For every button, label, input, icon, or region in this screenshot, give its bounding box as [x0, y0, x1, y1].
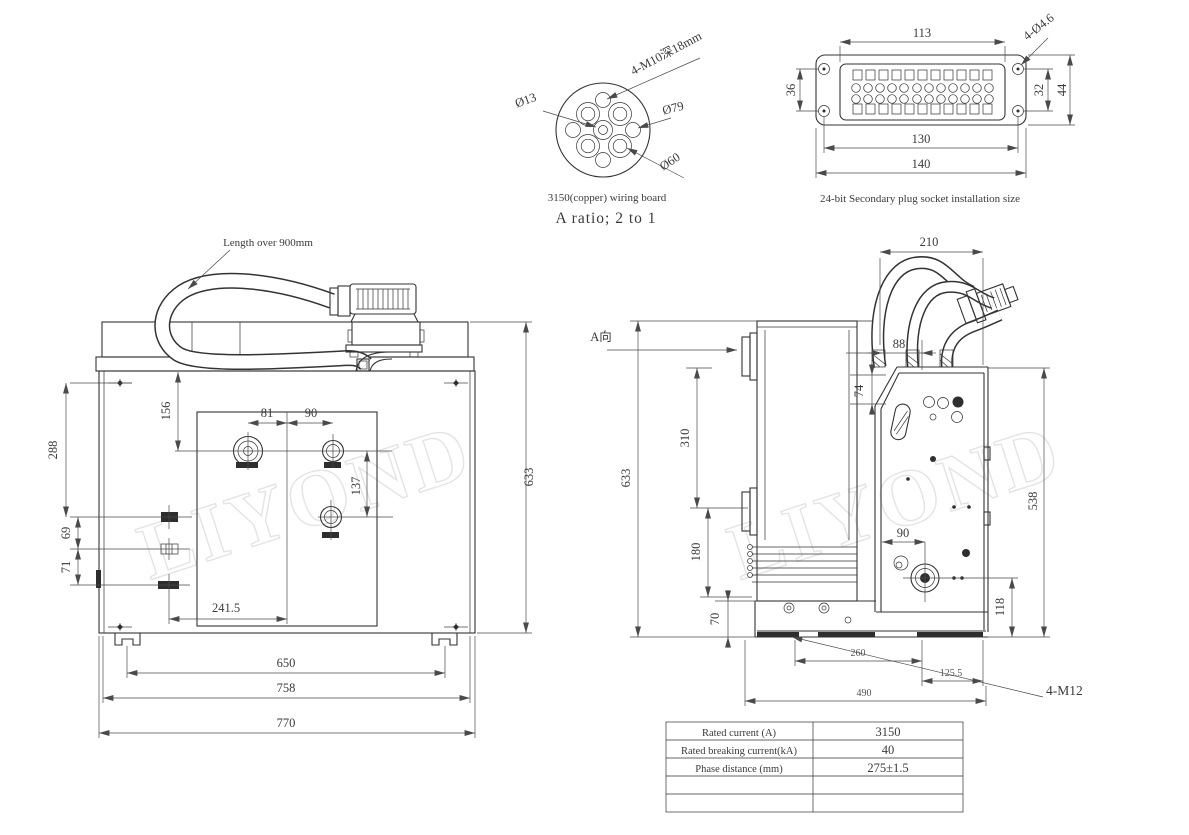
svg-text:758: 758 [277, 681, 296, 695]
svg-text:125.5: 125.5 [940, 668, 963, 679]
leader-d79 [638, 118, 671, 128]
plug-socket-dimensions: 113 4-Ø4.6 36 32 44 130 140 [784, 11, 1075, 178]
table-row: Rated current (A) 3150 [702, 725, 901, 739]
view-direction-label: A向 [590, 329, 612, 344]
watermark-group: LIYOND LIYOND [128, 407, 1072, 597]
svg-text:90: 90 [305, 406, 318, 420]
plug-socket-caption: 24-bit Secondary plug socket installatio… [820, 193, 1020, 205]
svg-text:210: 210 [920, 235, 939, 249]
wiring-board-caption: 3150(copper) wiring board [548, 192, 667, 204]
svg-text:74: 74 [852, 384, 866, 397]
side-handle-slot [889, 403, 911, 441]
svg-text:88: 88 [893, 337, 906, 351]
svg-text:770: 770 [277, 716, 296, 730]
detail-plug-socket: 113 4-Ø4.6 36 32 44 130 140 24-bit Secon… [784, 11, 1075, 205]
watermark-text: LIYOND [718, 407, 1072, 597]
svg-text:118: 118 [993, 598, 1007, 616]
socket-cutout [840, 64, 1005, 120]
detail-a-wiring-board: 4-M10深18mm Ø13 Ø79 Ø60 3150(copper) wiri… [513, 29, 704, 227]
side-base [755, 601, 988, 637]
spec-value: 275±1.5 [867, 761, 908, 775]
side-upper-bushing [742, 333, 757, 380]
wiring-board-tapped-holes [566, 93, 641, 168]
spec-label: Rated breaking current(kA) [681, 746, 798, 757]
svg-text:90: 90 [897, 526, 910, 540]
svg-text:490: 490 [857, 688, 872, 699]
front-foot-left [115, 633, 140, 645]
bolt-leader [792, 637, 1043, 697]
svg-text:633: 633 [522, 468, 536, 487]
svg-text:44: 44 [1055, 83, 1069, 96]
svg-text:260: 260 [851, 648, 866, 659]
svg-text:310: 310 [678, 429, 692, 448]
spec-value: 40 [882, 743, 895, 757]
svg-text:633: 633 [619, 469, 633, 488]
leader-d13 [543, 111, 596, 127]
label-bolt-holes: 4-M10深18mm [628, 29, 704, 78]
spec-label: Rated current (A) [702, 728, 777, 739]
label-d79: Ø79 [661, 99, 685, 118]
svg-text:288: 288 [46, 441, 60, 460]
label-d13: Ø13 [513, 90, 538, 111]
svg-text:156: 156 [159, 402, 173, 421]
table-row: Phase distance (mm) 275±1.5 [695, 761, 908, 775]
socket-slot-rows [853, 70, 992, 114]
spec-value: 3150 [876, 725, 901, 739]
wiring-board-outer-circle [556, 83, 650, 177]
svg-text:130: 130 [912, 132, 931, 146]
front-plug-socket-box [352, 322, 420, 345]
side-cables [872, 263, 1021, 367]
front-button-label-plate [324, 462, 341, 468]
front-button-label-plate [236, 462, 258, 468]
drawing-canvas: LIYOND LIYOND 4-M10深18mm Ø13 Ø79 Ø60 315… [0, 0, 1189, 835]
svg-text:81: 81 [261, 406, 274, 420]
spec-label: Phase distance (mm) [695, 764, 783, 775]
wiring-board-ringed-holes [577, 103, 632, 158]
front-button-label-plate [322, 532, 339, 538]
svg-text:32: 32 [1032, 84, 1046, 97]
ratio-note: A ratio; 2 to 1 [555, 210, 656, 227]
svg-text:140: 140 [912, 157, 931, 171]
svg-text:36: 36 [784, 84, 798, 97]
svg-text:538: 538 [1026, 492, 1040, 511]
label-d60: Ø60 [657, 150, 683, 173]
spec-table: Rated current (A) 3150 Rated breaking cu… [666, 722, 963, 812]
svg-text:4-Ø4.6: 4-Ø4.6 [1020, 11, 1056, 44]
socket-pin-rows [852, 84, 994, 104]
watermark-text: LIYOND [128, 407, 482, 597]
drawing-sheet: LIYOND LIYOND 4-M10深18mm Ø13 Ø79 Ø60 315… [0, 0, 1189, 835]
svg-text:71: 71 [59, 561, 73, 574]
cable-note: Length over 900mm [223, 237, 313, 249]
front-foot-right [432, 633, 457, 645]
svg-text:650: 650 [277, 656, 296, 670]
svg-text:180: 180 [689, 543, 703, 562]
svg-text:69: 69 [59, 527, 73, 540]
svg-text:113: 113 [913, 26, 931, 40]
bolt-label: 4-M12 [1046, 683, 1083, 698]
svg-text:241.5: 241.5 [212, 601, 240, 615]
table-row: Rated breaking current(kA) 40 [681, 743, 894, 757]
wiring-board-center-hole [594, 121, 613, 140]
svg-text:70: 70 [708, 613, 722, 626]
svg-text:137: 137 [349, 477, 363, 496]
